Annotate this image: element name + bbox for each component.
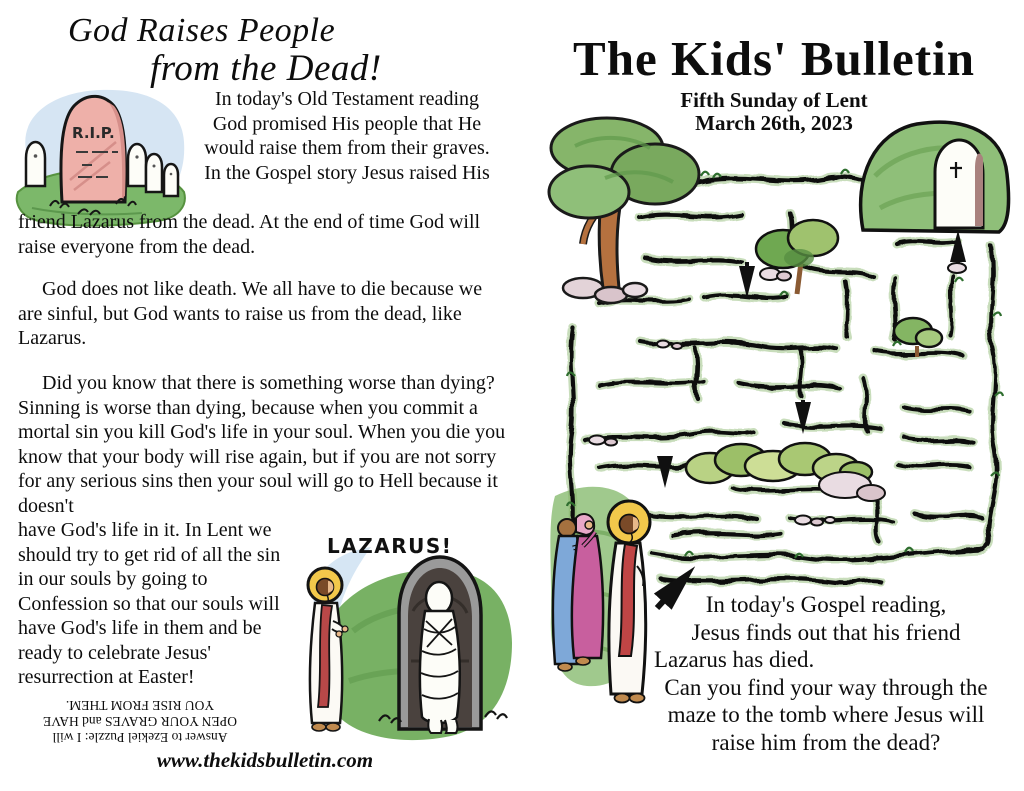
small-tree xyxy=(756,220,838,294)
caption-line: maze to the tomb where Jesus will xyxy=(630,701,1022,729)
paragraph3-wide-part: Did you know that there is something wor… xyxy=(18,371,512,518)
website-url: www.thekidsbulletin.com xyxy=(0,748,530,773)
lazarus-label: LAZARUS! xyxy=(327,534,452,558)
tombstone-illustration: R.I.P. xyxy=(12,80,190,228)
puzzle-answer-line: Answer to Ezekiel Puzzle: I will xyxy=(24,729,256,745)
intro-paragraph-below-image: friend Lazarus from the dead. At the end… xyxy=(18,210,502,259)
door-edge xyxy=(975,153,983,226)
small-gravestone xyxy=(164,164,178,196)
puzzle-answer-line: YOU RISE FROM THEM. xyxy=(24,697,256,713)
puzzle-answer-upside-down: Answer to Ezekiel Puzzle: I will OPEN YO… xyxy=(24,697,256,745)
paragraph-god-does-not-like-death: God does not like death. We all have to … xyxy=(18,277,496,351)
lazarus-illustration: LAZARUS! xyxy=(283,521,515,749)
small-gravestone xyxy=(146,154,162,192)
bulletin-subtitle: Fifth Sunday of Lent xyxy=(528,88,1020,113)
small-gravestone xyxy=(128,144,146,186)
mourning-women xyxy=(553,514,603,671)
tree xyxy=(549,118,699,303)
maze-caption: In today's Gospel reading, Jesus finds o… xyxy=(630,591,1022,756)
caption-line: Lazarus has died. xyxy=(630,646,1022,674)
bulletin-sheet: God Raises People from the Dead! R.I.P. xyxy=(0,0,1024,791)
caption-line: Jesus finds out that his friend xyxy=(630,619,1022,647)
caption-line: In today's Gospel reading, xyxy=(630,591,1022,619)
caption-line: Can you find your way through the xyxy=(630,674,1022,702)
tomb-mound xyxy=(861,122,1009,232)
rip-text: R.I.P. xyxy=(72,124,115,142)
paragraph3-narrow-part: have God's life in it. In Lent we should… xyxy=(18,518,282,690)
intro-paragraph-beside-image: In today's Old Testament reading God pro… xyxy=(196,87,498,185)
caption-line: raise him from the dead? xyxy=(630,729,1022,757)
small-gravestone xyxy=(26,142,45,186)
bulletin-title: The Kids' Bulletin xyxy=(528,30,1020,87)
left-page-title-line1: God Raises People xyxy=(68,12,335,50)
puzzle-answer-line: OPEN YOUR GRAVES and HAVE xyxy=(24,713,256,729)
